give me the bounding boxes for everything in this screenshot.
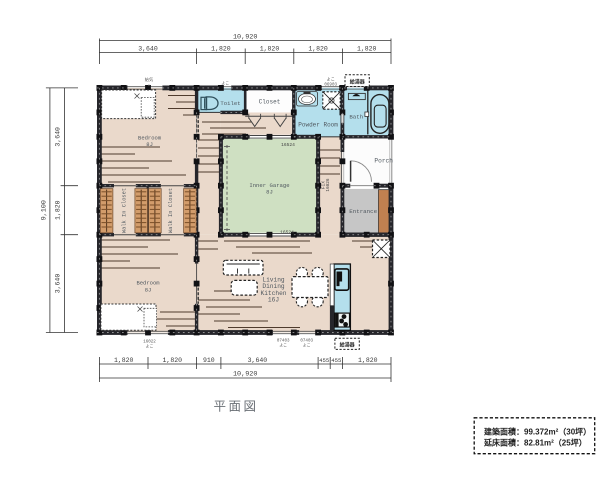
svg-text:455: 455 bbox=[319, 357, 329, 364]
svg-text:Bedroom: Bedroom bbox=[136, 280, 160, 287]
svg-text:3,640: 3,640 bbox=[138, 45, 158, 52]
svg-text:1,820: 1,820 bbox=[308, 45, 328, 52]
svg-text:Powder Room: Powder Room bbox=[298, 122, 338, 129]
svg-text:Walk In Closet: Walk In Closet bbox=[122, 188, 128, 233]
svg-text:給湯器: 給湯器 bbox=[350, 78, 366, 85]
svg-text:Walk In Closet: Walk In Closet bbox=[168, 188, 174, 233]
svg-text:給湯器: 給湯器 bbox=[340, 342, 356, 349]
svg-text:1,820: 1,820 bbox=[163, 357, 183, 364]
svg-text:延床面積：82.81m²（25坪）: 延床面積：82.81m²（25坪） bbox=[483, 438, 587, 448]
svg-text:3,640: 3,640 bbox=[54, 127, 61, 147]
svg-text:▲: ▲ bbox=[147, 83, 150, 87]
svg-text:1,820: 1,820 bbox=[54, 200, 61, 220]
svg-text:Porch: Porch bbox=[374, 157, 393, 164]
svg-text:よこ: よこ bbox=[279, 342, 287, 347]
svg-text:Toilet: Toilet bbox=[220, 100, 240, 107]
svg-text:建築面積：99.372m²（30坪）: 建築面積：99.372m²（30坪） bbox=[483, 427, 591, 437]
svg-text:Bath: Bath bbox=[349, 114, 363, 121]
svg-text:16524: 16524 bbox=[281, 142, 295, 148]
svg-text:16524: 16524 bbox=[280, 229, 294, 235]
svg-text:8J: 8J bbox=[146, 141, 153, 148]
svg-text:3,640: 3,640 bbox=[54, 274, 61, 294]
svg-text:よこ: よこ bbox=[303, 342, 311, 347]
svg-text:1,820: 1,820 bbox=[260, 45, 280, 52]
svg-text:Entrance: Entrance bbox=[349, 208, 377, 215]
svg-text:9,100: 9,100 bbox=[41, 200, 49, 220]
svg-text:8J: 8J bbox=[266, 189, 273, 196]
svg-text:よこ: よこ bbox=[327, 77, 335, 82]
svg-text:16J: 16J bbox=[268, 297, 279, 304]
svg-text:1,820: 1,820 bbox=[358, 357, 378, 364]
svg-text:10,920: 10,920 bbox=[233, 33, 257, 41]
svg-text:1,820: 1,820 bbox=[211, 45, 231, 52]
svg-text:3,640: 3,640 bbox=[248, 357, 268, 364]
svg-text:平面図: 平面図 bbox=[214, 400, 259, 414]
svg-text:06903: 06903 bbox=[324, 83, 337, 87]
svg-text:8J: 8J bbox=[145, 287, 152, 294]
svg-text:455: 455 bbox=[331, 357, 341, 364]
svg-text:10,920: 10,920 bbox=[233, 371, 257, 379]
svg-text:910: 910 bbox=[203, 357, 215, 364]
svg-text:よこ: よこ bbox=[221, 81, 229, 86]
svg-text:Closet: Closet bbox=[259, 98, 281, 105]
svg-text:よこ: よこ bbox=[146, 343, 154, 348]
svg-text:16026: 16026 bbox=[326, 178, 331, 192]
svg-text:1,820: 1,820 bbox=[114, 357, 134, 364]
svg-text:1,820: 1,820 bbox=[357, 45, 377, 52]
